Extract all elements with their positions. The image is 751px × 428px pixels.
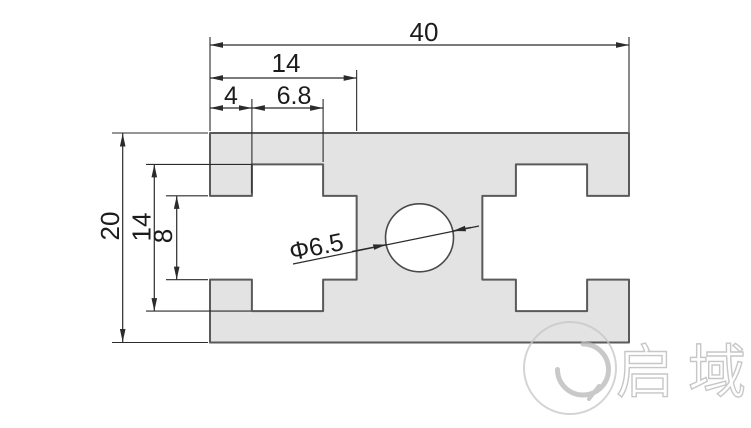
- dim-total-height-label: 20: [95, 212, 125, 241]
- watermark-brand-text: 启域: [616, 340, 751, 405]
- watermark-q-mark: [558, 344, 609, 395]
- dim-total-width-label: 40: [410, 17, 439, 47]
- dim-slot-inner-width-label: 6.8: [277, 82, 312, 110]
- dim-slot-mouth-label: 8: [148, 229, 178, 243]
- technical-drawing-canvas: 40 14 4 6.8 20 14 8 Φ6.5 启域: [0, 0, 751, 428]
- dim-hole-diameter-label: Φ6.5: [287, 228, 346, 266]
- dim-slot-lip-label: 4: [224, 82, 238, 110]
- dim-slot-depth-label: 14: [272, 48, 301, 78]
